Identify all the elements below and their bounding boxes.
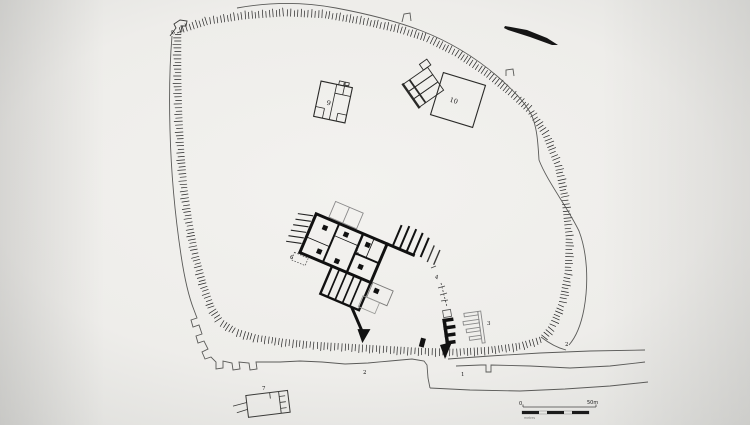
outer-contour-crenellated bbox=[191, 310, 345, 370]
structures-3-4-group: 4 3 bbox=[419, 266, 491, 359]
outer-contour-notch-top bbox=[402, 13, 411, 22]
scanned-site-plan: 8 9 10 bbox=[0, 0, 750, 425]
building-10-label: 10 bbox=[449, 96, 459, 106]
scale-bar-line bbox=[523, 405, 596, 408]
black-wall-stub bbox=[419, 338, 426, 348]
building-7-label: 7 bbox=[262, 386, 266, 392]
scale-zero-label: 0 bbox=[519, 401, 522, 407]
building-9-label: 9 bbox=[326, 99, 332, 108]
scale-unit-caption: metres bbox=[524, 416, 536, 420]
building-9-annex-a bbox=[339, 81, 345, 86]
complex-room-b bbox=[408, 75, 438, 100]
scale-bar: 0 50m metres bbox=[519, 400, 598, 420]
trackway-mid-right bbox=[456, 362, 645, 372]
rampart-crest-path bbox=[181, 16, 566, 349]
lower-wing-outline bbox=[320, 266, 370, 310]
trackway-bottom bbox=[430, 382, 648, 391]
trackway-corner-link bbox=[541, 337, 566, 350]
comb-walls-east bbox=[393, 223, 430, 257]
small-outline-cell bbox=[443, 309, 452, 317]
site-plan-svg: 8 9 10 bbox=[0, 0, 750, 425]
building-5-label: 5 bbox=[354, 249, 359, 257]
pier-bases bbox=[312, 223, 374, 274]
black-triangle-feature bbox=[440, 342, 452, 359]
trackway-2-label-left: 2 bbox=[363, 370, 367, 376]
outer-contour-lines bbox=[170, 4, 587, 371]
rampart-hachure-ticks bbox=[173, 8, 574, 357]
wall-fragments-east bbox=[427, 245, 440, 264]
comb-building-excavated bbox=[442, 317, 458, 344]
building-10: 10 bbox=[431, 73, 486, 128]
complex-heavy-wall-a bbox=[402, 84, 419, 109]
faint-annex-outline bbox=[329, 201, 363, 228]
comb-building-3-outline bbox=[462, 311, 485, 345]
trench-ladder-marks bbox=[431, 266, 448, 307]
outer-contour-notch-right bbox=[506, 69, 514, 76]
structure-4-label: 4 bbox=[434, 275, 439, 282]
trackway-left bbox=[345, 359, 430, 388]
scale-end-label: 50m bbox=[587, 400, 598, 406]
outer-contour-left bbox=[170, 36, 194, 310]
outer-contour-top-right bbox=[237, 4, 587, 346]
complex-annex bbox=[419, 59, 430, 70]
ink-stroke-mark bbox=[504, 26, 558, 45]
structure-3-label: 3 bbox=[487, 321, 491, 327]
building-7: 7 bbox=[232, 386, 290, 419]
trackway-2-label-right: 2 bbox=[565, 342, 569, 348]
complex-room-a bbox=[403, 67, 433, 92]
scale-bar-segments bbox=[522, 411, 589, 414]
trackway-1-label: 1 bbox=[461, 372, 465, 378]
structure-8-label: 8 bbox=[170, 29, 177, 36]
building-9-annex-b bbox=[345, 82, 350, 86]
structure-8-gate: 8 bbox=[170, 20, 187, 36]
trackway-lines bbox=[345, 337, 648, 391]
building-6-label: 6 bbox=[289, 254, 295, 261]
lower-wing-room-walls bbox=[328, 269, 362, 306]
main-building-complex bbox=[261, 184, 444, 357]
building-7-walls bbox=[232, 390, 290, 419]
complex-heavy-wall-b bbox=[410, 80, 426, 103]
building-9: 9 bbox=[314, 77, 354, 123]
